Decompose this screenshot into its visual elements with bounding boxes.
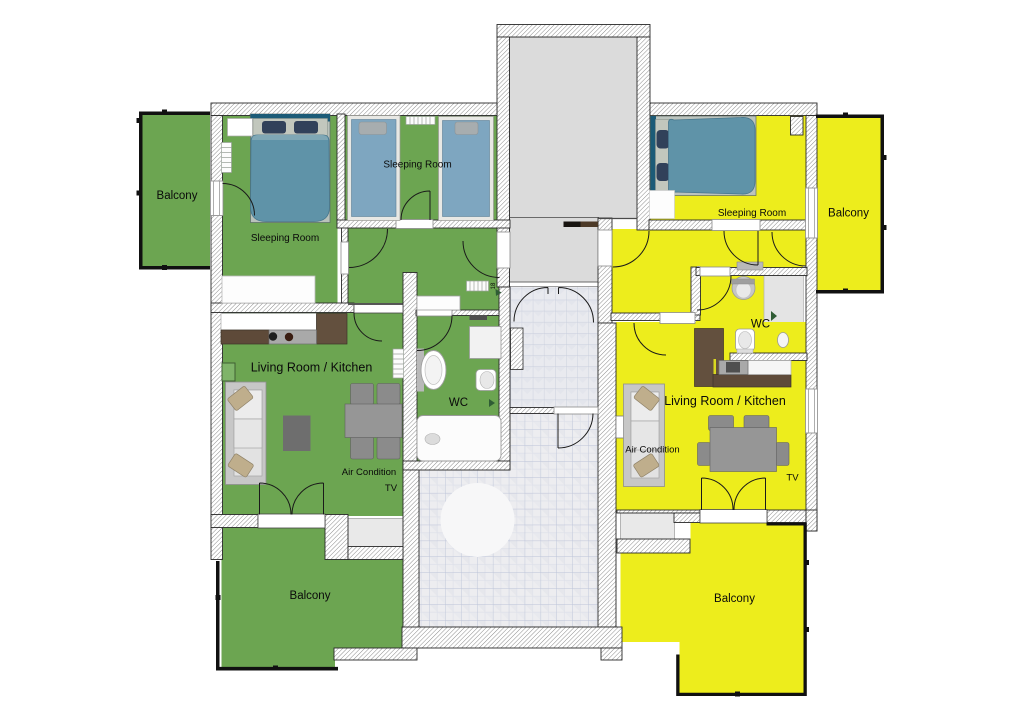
svg-text:Air Condition: Air Condition bbox=[342, 467, 396, 478]
svg-text:TV: TV bbox=[786, 473, 799, 484]
svg-text:18: 18 bbox=[491, 282, 497, 289]
svg-text:Balcony: Balcony bbox=[714, 593, 755, 605]
svg-text:WC: WC bbox=[751, 319, 770, 331]
svg-text:Sleeping Room: Sleeping Room bbox=[383, 160, 451, 171]
svg-text:Balcony: Balcony bbox=[157, 190, 198, 202]
svg-text:Sleeping Room: Sleeping Room bbox=[718, 208, 786, 219]
svg-text:Balcony: Balcony bbox=[290, 590, 331, 602]
svg-text:WC: WC bbox=[449, 397, 468, 409]
svg-text:Sleeping Room: Sleeping Room bbox=[251, 233, 319, 244]
svg-text:Air Condition: Air Condition bbox=[625, 445, 679, 456]
svg-text:Living Room / Kitchen: Living Room / Kitchen bbox=[664, 394, 786, 408]
svg-text:TV: TV bbox=[385, 483, 398, 494]
svg-text:Living Room / Kitchen: Living Room / Kitchen bbox=[251, 361, 373, 375]
svg-text:Balcony: Balcony bbox=[828, 208, 869, 220]
